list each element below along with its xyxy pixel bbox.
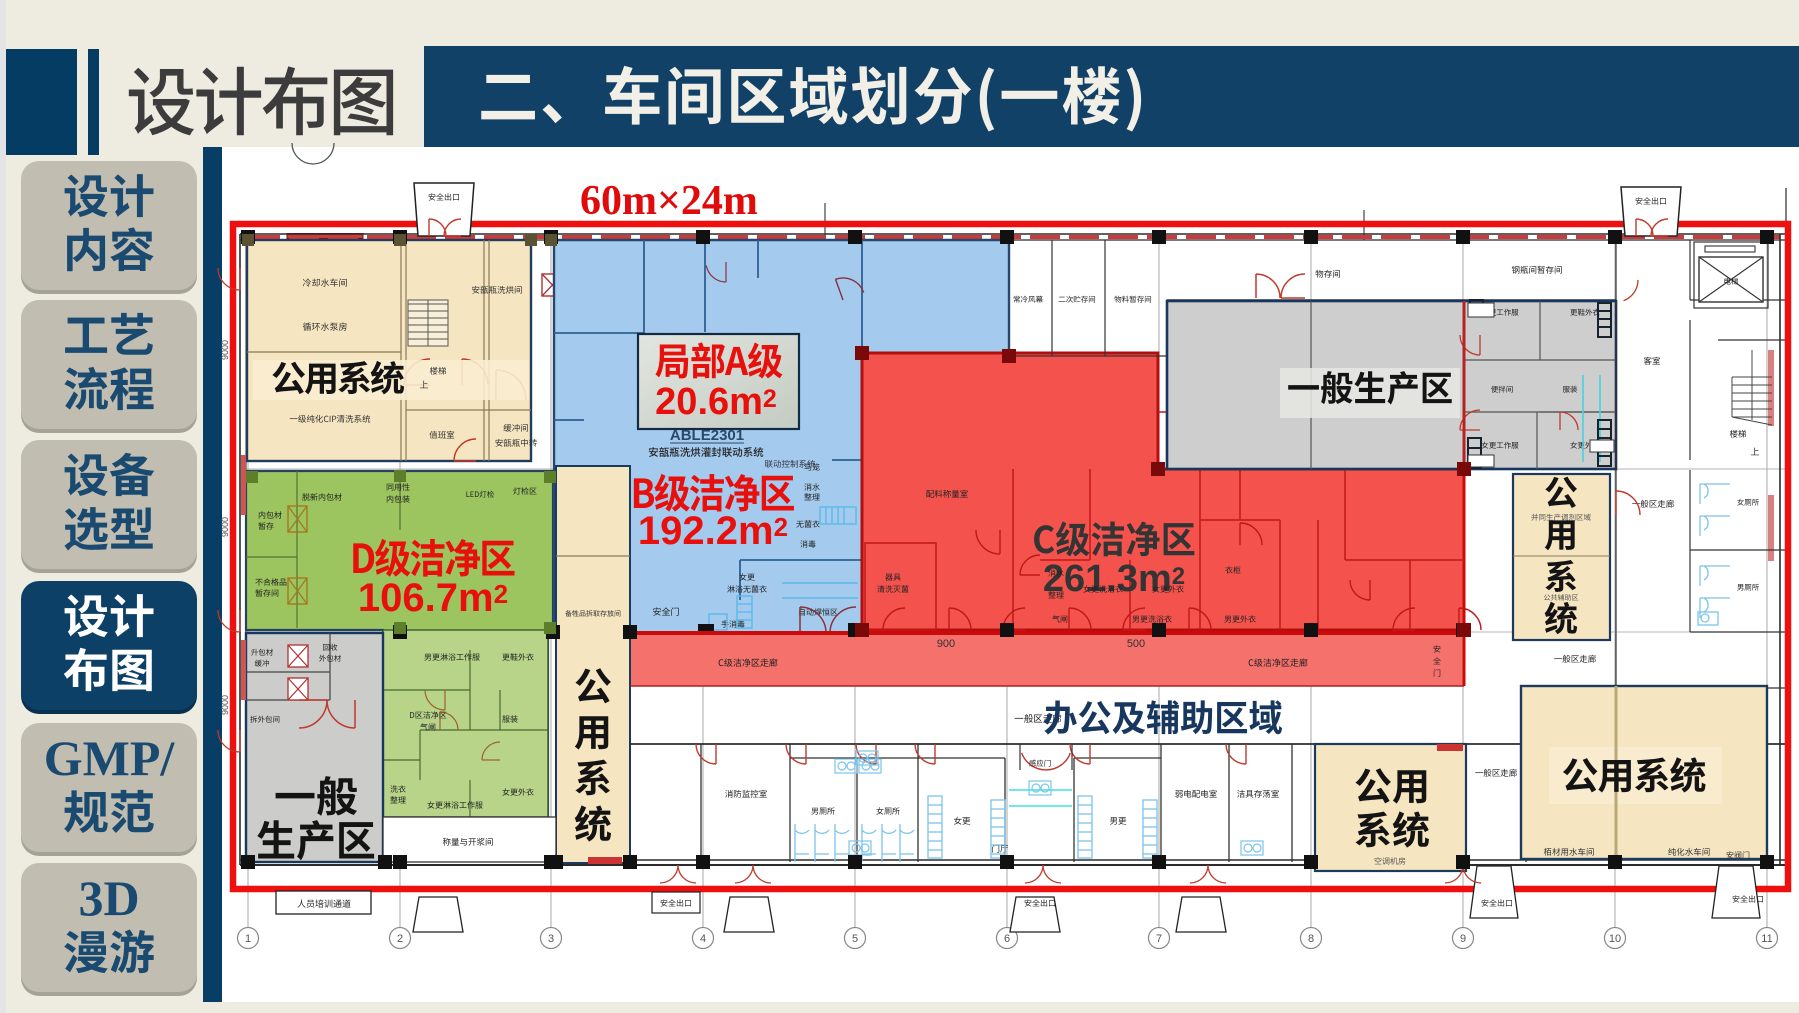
svg-text:4: 4 <box>700 933 706 945</box>
svg-text:ABLE2301: ABLE2301 <box>670 427 744 444</box>
svg-text:106.7m2: 106.7m2 <box>358 576 508 620</box>
svg-text:9: 9 <box>1460 933 1466 945</box>
svg-text:6: 6 <box>1004 933 1010 945</box>
svg-text:900: 900 <box>937 638 955 650</box>
svg-text:10: 10 <box>1609 933 1621 945</box>
svg-text:7: 7 <box>1156 933 1162 945</box>
svg-text:1: 1 <box>245 933 251 945</box>
svg-text:9000: 9000 <box>220 517 230 537</box>
svg-text:2: 2 <box>397 933 403 945</box>
svg-text:500: 500 <box>1127 638 1145 650</box>
svg-text:192.2m2: 192.2m2 <box>638 509 788 553</box>
svg-text:3D: 3D <box>78 870 139 926</box>
svg-text:8: 8 <box>1308 933 1314 945</box>
svg-text:GMP/: GMP/ <box>44 730 176 786</box>
svg-text:11: 11 <box>1761 933 1772 945</box>
svg-text:5: 5 <box>852 933 858 945</box>
svg-text:261.3m2: 261.3m2 <box>1043 558 1185 600</box>
svg-text:9000: 9000 <box>220 695 230 715</box>
svg-text:20.6m2: 20.6m2 <box>655 381 777 423</box>
svg-text:3: 3 <box>548 933 554 945</box>
svg-text:9000: 9000 <box>220 340 230 360</box>
svg-text:60m×24m: 60m×24m <box>580 178 758 224</box>
